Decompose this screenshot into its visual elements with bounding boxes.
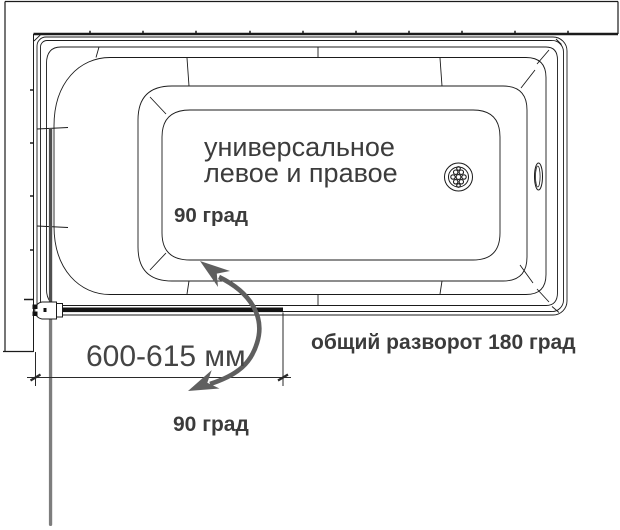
drain-icon (445, 163, 473, 191)
total-rotation-label: общий разворот 180 град (311, 331, 576, 355)
overflow-icon (535, 163, 543, 190)
door-inner-bar (49, 128, 52, 305)
bathtub-door-diagram: универсальное левое и правое 90 град 600… (0, 0, 620, 530)
dimension-value-label: 600-615 мм (86, 340, 246, 374)
line-art (0, 0, 620, 530)
angle-top-label: 90 град (174, 204, 248, 228)
tub-universal-label: универсальное левое и правое (204, 134, 398, 186)
tub-universal-label-line1: универсальное (204, 134, 398, 160)
tub-universal-label-line2: левое и правое (204, 160, 398, 186)
door-closed-bar (60, 308, 283, 313)
door-open-bar (49, 305, 52, 526)
angle-bottom-label: 90 град (173, 413, 249, 437)
hinge-icon (33, 302, 63, 319)
